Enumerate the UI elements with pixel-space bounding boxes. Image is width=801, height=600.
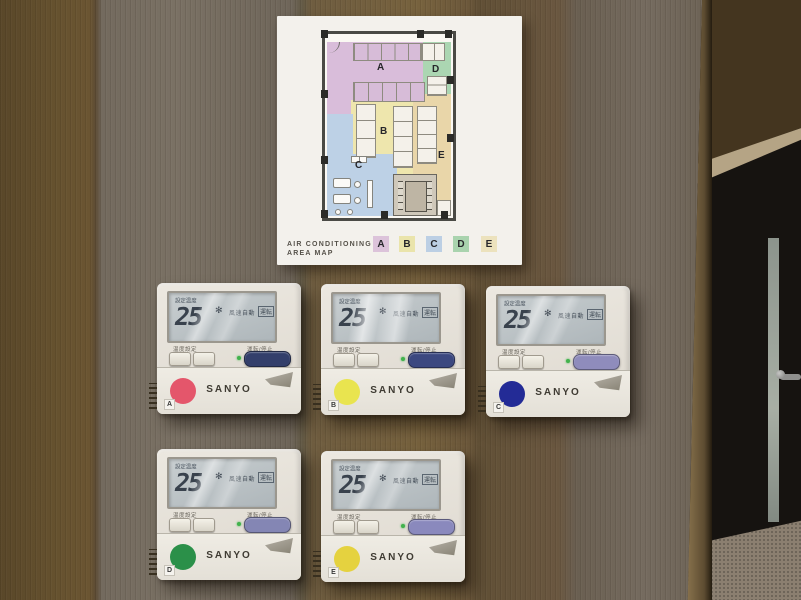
legend-swatch-d: D <box>453 236 469 252</box>
poster-title-line1: AIR CONDITIONING <box>287 240 372 249</box>
zone-tag: B <box>328 400 339 411</box>
run-led <box>237 356 241 360</box>
lounge-table-1 <box>354 181 361 188</box>
lounge-sofa-1 <box>333 178 351 188</box>
wall-corner-edge <box>686 0 712 600</box>
fan-icon: ✻ <box>379 306 387 317</box>
temp-up-button[interactable] <box>522 355 544 369</box>
zone-a-left-column <box>327 42 353 118</box>
legend-letter: D <box>457 239 464 250</box>
lcd-display: 設定温度 25 ✻ 風速自動 運転 <box>167 457 277 509</box>
run-status-text: 運転 <box>422 474 438 485</box>
zone-d-cells <box>427 76 447 96</box>
lounge-table-2 <box>354 197 361 204</box>
ac-controller-b: 設定温度 25 ✻ 風速自動 運転 温度設定 運転/停止 SANYO B <box>321 284 465 415</box>
fan-icon: ✻ <box>379 473 387 484</box>
panel-cover: SANYO E <box>321 535 465 582</box>
temperature-readout: 25 <box>339 303 365 332</box>
temperature-readout: 25 <box>339 470 365 499</box>
side-vents <box>313 384 321 410</box>
temperature-readout: 25 <box>175 302 201 331</box>
meeting-chairs-left <box>398 181 403 210</box>
column <box>321 90 328 98</box>
run-status-text: 運転 <box>258 306 274 317</box>
side-vents <box>149 549 157 575</box>
column <box>445 30 452 38</box>
panel-cover: SANYO C <box>486 370 630 417</box>
legend-swatch-c: C <box>426 236 442 252</box>
ac-controller-c: 設定温度 25 ✻ 風速自動 運転 温度設定 運転/停止 SANYO C <box>486 286 630 417</box>
zone-tag: A <box>164 399 175 410</box>
hallway <box>686 0 801 600</box>
fan-icon: ✻ <box>215 471 223 482</box>
zone-b-cells-left <box>356 104 376 158</box>
map-zone-b-label: B <box>380 126 387 137</box>
meeting-room <box>393 174 437 216</box>
room-row-second-purple <box>353 82 425 102</box>
side-vents <box>149 383 157 409</box>
map-zone-c-label: C <box>355 160 362 171</box>
legend-letter: E <box>486 239 493 250</box>
run-status-text: 運転 <box>422 307 438 318</box>
run-led <box>566 359 570 363</box>
temp-down-button[interactable] <box>169 352 191 366</box>
temp-down-button[interactable] <box>333 353 355 367</box>
temp-up-button[interactable] <box>357 353 379 367</box>
run-stop-button[interactable] <box>408 519 455 535</box>
map-zone-e-label: E <box>438 150 445 161</box>
door-glass-strip <box>768 238 779 522</box>
temp-down-button[interactable] <box>333 520 355 534</box>
poster-title: AIR CONDITIONING AREA MAP <box>287 240 372 258</box>
legend-letter: C <box>430 239 437 250</box>
temperature-readout: 25 <box>504 305 530 334</box>
lounge-bench <box>367 180 373 208</box>
temp-down-button[interactable] <box>169 518 191 532</box>
column <box>417 30 424 38</box>
zone-tag: D <box>164 565 175 576</box>
run-stop-button[interactable] <box>244 517 291 533</box>
fan-mode-text: 風速自動 <box>393 476 419 485</box>
panel-cover: SANYO D <box>157 533 301 580</box>
run-led <box>401 357 405 361</box>
fan-mode-text: 風速自動 <box>229 308 255 317</box>
temp-up-button[interactable] <box>193 352 215 366</box>
fan-mode-text: 風速自動 <box>393 309 419 318</box>
temp-up-button[interactable] <box>357 520 379 534</box>
fan-icon: ✻ <box>215 305 223 316</box>
side-vents <box>313 551 321 577</box>
temp-up-button[interactable] <box>193 518 215 532</box>
legend-letter: B <box>403 239 410 250</box>
column <box>321 210 328 218</box>
lounge-sofa-2 <box>333 194 351 204</box>
legend-swatch-a: A <box>373 236 389 252</box>
temp-down-button[interactable] <box>498 355 520 369</box>
floor-plan: A D B E C <box>322 31 456 221</box>
column <box>441 211 448 219</box>
legend-swatch-e: E <box>481 236 497 252</box>
column <box>321 30 328 38</box>
legend-letter: A <box>377 239 384 250</box>
room-row-top-purple <box>353 43 421 61</box>
zone-tag: E <box>328 567 339 578</box>
ac-controller-d: 設定温度 25 ✻ 風速自動 運転 温度設定 運転/停止 SANYO D <box>157 449 301 580</box>
column <box>447 76 454 84</box>
lounge-stool-2 <box>347 209 353 215</box>
run-led <box>237 522 241 526</box>
zone-b-cells-mid <box>393 106 413 168</box>
zone-e-cells <box>417 106 437 164</box>
run-status-text: 運転 <box>258 472 274 483</box>
door-knob[interactable] <box>776 370 785 379</box>
column <box>447 134 454 142</box>
fan-mode-text: 風速自動 <box>229 474 255 483</box>
panel-cover: SANYO A <box>157 367 301 414</box>
lcd-display: 設定温度 25 ✻ 風速自動 運転 <box>331 292 441 344</box>
poster-title-line2: AREA MAP <box>287 249 372 258</box>
lcd-display: 設定温度 25 ✻ 風速自動 運転 <box>496 294 606 346</box>
run-led <box>401 524 405 528</box>
meeting-table <box>405 181 427 212</box>
temperature-readout: 25 <box>175 468 201 497</box>
side-vents <box>478 386 486 412</box>
legend-swatch-b: B <box>399 236 415 252</box>
room-row-top-white <box>421 43 445 61</box>
run-stop-button[interactable] <box>408 352 455 368</box>
run-status-text: 運転 <box>587 309 603 320</box>
column <box>381 211 388 219</box>
fan-mode-text: 風速自動 <box>558 311 584 320</box>
ac-controller-e: 設定温度 25 ✻ 風速自動 運転 温度設定 運転/停止 SANYO E <box>321 451 465 582</box>
panel-cover: SANYO B <box>321 368 465 415</box>
column <box>321 156 328 164</box>
map-zone-d-label: D <box>432 64 439 75</box>
run-stop-button[interactable] <box>244 351 291 367</box>
run-stop-button[interactable] <box>573 354 620 370</box>
fan-icon: ✻ <box>544 308 552 319</box>
ac-controller-a: 設定温度 25 ✻ 風速自動 運転 温度設定 運転/停止 SANYO A <box>157 283 301 414</box>
lcd-display: 設定温度 25 ✻ 風速自動 運転 <box>167 291 277 343</box>
area-map-poster: A D B E C AIR CONDITIONING AREA MAP A B … <box>277 16 522 265</box>
zone-tag: C <box>493 402 504 413</box>
lounge-stool-1 <box>335 209 341 215</box>
lcd-display: 設定温度 25 ✻ 風速自動 運転 <box>331 459 441 511</box>
map-zone-a-label: A <box>377 62 384 73</box>
meeting-chairs-right <box>427 181 432 210</box>
